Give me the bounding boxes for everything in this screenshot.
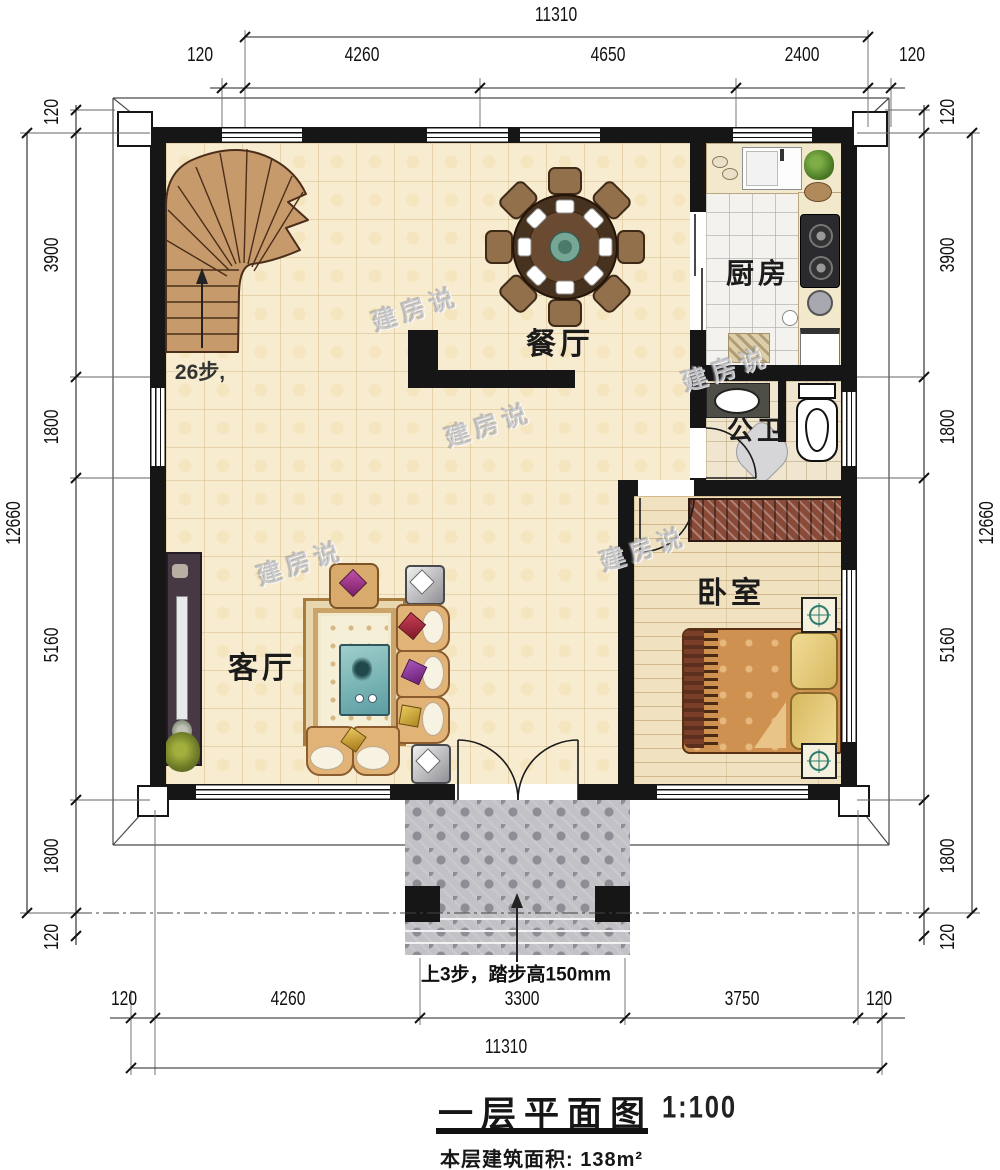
dim-right-seg3: 5160 (936, 628, 960, 663)
nightstand (802, 744, 836, 778)
title-underline (436, 1128, 648, 1134)
dim-bottom-seg1: 4260 (271, 987, 306, 1011)
dim-top-seg4: 120 (899, 43, 925, 67)
floor-area-label: 本层建筑面积: 138m² (440, 1143, 643, 1170)
dim-right-seg0: 120 (936, 99, 960, 125)
kitchen-sliding-door (695, 214, 702, 330)
witness-lines (20, 30, 980, 1075)
room-label-bath: 公卫 (727, 411, 787, 448)
dim-bottom-total: 11310 (485, 1035, 527, 1059)
dim-left-seg3: 5160 (40, 628, 64, 663)
entrance-door-swings (458, 740, 578, 800)
room-label-dining: 餐厅 (526, 319, 594, 363)
dim-right-seg4: 1800 (936, 839, 960, 874)
title-scale: 1:100 (662, 1090, 737, 1126)
porch-entry-arrow (511, 893, 523, 962)
dim-right-total: 12660 (975, 501, 999, 544)
floor-plan-sheet: 餐厅 厨房 公卫 卧室 客厅 26步, 上3步，踏步高150mm 建房说 建房说… (0, 0, 1000, 1170)
floor-area-value: 138m² (580, 1149, 643, 1170)
dimension-ticks (22, 32, 977, 1073)
dim-bottom-seg0: 120 (111, 987, 137, 1011)
dim-right-seg5: 120 (936, 924, 960, 950)
dim-left-seg4: 1800 (40, 839, 64, 874)
room-label-living: 客厅 (228, 643, 296, 687)
nightstand (802, 598, 836, 632)
dim-left-seg1: 3900 (40, 238, 64, 273)
stairs (166, 149, 308, 352)
dim-left-total: 12660 (2, 501, 26, 544)
dim-top-seg3: 2400 (785, 43, 820, 67)
dim-bottom-seg2: 3300 (505, 987, 540, 1011)
dim-left-seg0: 120 (40, 99, 64, 125)
dim-left-seg5: 120 (40, 924, 64, 950)
dim-right-seg1: 3900 (936, 238, 960, 273)
floor-area-text: 本层建筑面积: (440, 1149, 574, 1170)
stair-steps-note: 26步, (175, 356, 225, 386)
room-label-bedroom: 卧室 (697, 568, 765, 612)
room-label-kitchen: 厨房 (726, 252, 790, 292)
dim-top-seg0: 120 (187, 43, 213, 67)
dim-top-total: 11310 (535, 3, 577, 27)
dim-top-seg2: 4650 (591, 43, 626, 67)
entrance-steps-note: 上3步，踏步高150mm (421, 960, 611, 987)
dim-right-seg2: 1800 (936, 410, 960, 445)
dim-bottom-seg3: 3750 (725, 987, 760, 1011)
plan-linework (0, 0, 1000, 1170)
dim-top-seg1: 4260 (345, 43, 380, 67)
dim-bottom-seg4: 120 (866, 987, 892, 1011)
dim-left-seg2: 1800 (40, 410, 64, 445)
dining-table-set (486, 168, 644, 326)
